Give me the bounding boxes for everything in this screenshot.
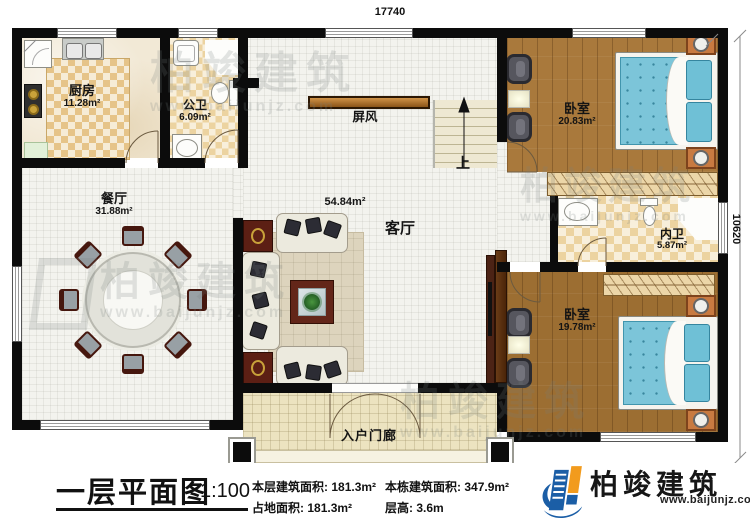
bed-pillow	[686, 102, 712, 142]
company-website: www.baijunjz.com	[660, 494, 750, 506]
entry-door-opening	[332, 383, 418, 393]
plan-scale: 1:100	[200, 480, 250, 503]
bed-pillow	[684, 324, 710, 362]
wall	[497, 38, 507, 142]
bedroom-chair	[506, 308, 532, 338]
title-block: 一层平面图 1:100 本层建筑面积: 181.3m² 本栋建筑面积: 347.…	[0, 463, 750, 523]
window	[572, 28, 646, 38]
wall	[160, 38, 170, 158]
stat-floor-area: 本层建筑面积: 181.3m²	[252, 478, 376, 495]
wall	[233, 383, 332, 393]
wall	[238, 38, 248, 158]
dining-chair	[187, 289, 207, 311]
bedroom-chair	[506, 358, 532, 388]
kitchen-sink	[62, 38, 104, 60]
window	[600, 432, 696, 442]
bedroom-top-label: 卧室20.83m²	[558, 102, 595, 127]
sofa	[276, 346, 348, 386]
bed-pillow	[684, 364, 710, 402]
stairs-up-label: 上	[456, 156, 470, 171]
bed-blanket	[664, 321, 686, 405]
dining-chair	[122, 354, 144, 374]
coffee-table	[290, 280, 334, 324]
window	[325, 28, 413, 38]
public-bath-label: 公卫6.09m²	[179, 99, 211, 123]
bedroom-chair	[506, 112, 532, 142]
toilet	[211, 82, 229, 104]
wall	[233, 393, 243, 430]
window	[40, 420, 210, 430]
bedroom-side-table	[508, 336, 530, 354]
wall	[12, 28, 22, 430]
tv	[488, 282, 492, 336]
dimension-tick	[734, 30, 746, 42]
living-label: 客厅	[385, 221, 415, 238]
stat-floor-height: 层高: 3.6m	[385, 499, 444, 516]
sofa	[242, 252, 280, 350]
plan-title: 一层平面图	[56, 469, 211, 511]
wall	[233, 78, 259, 88]
wardrobe	[547, 172, 718, 196]
wall	[540, 262, 578, 272]
wall	[12, 158, 125, 168]
bedroom-side-table	[508, 90, 530, 108]
wall	[158, 158, 205, 168]
nightstand	[686, 147, 716, 169]
nightstand	[686, 295, 716, 317]
stat-land-area: 占地面积: 181.3m²	[252, 499, 352, 516]
wall	[238, 158, 248, 168]
bed-blanket	[666, 57, 688, 145]
kitchen-label: 厨房11.28m²	[64, 84, 101, 109]
wardrobe	[603, 274, 715, 296]
side-table	[243, 220, 273, 252]
dining-chair	[59, 289, 79, 311]
inner-bath-sink	[564, 202, 590, 221]
window	[57, 28, 117, 38]
wall	[497, 383, 507, 432]
wall	[418, 383, 507, 393]
kitchen-corner-unit	[24, 40, 52, 68]
dining-label: 餐厅31.88m²	[95, 192, 132, 217]
nightstand	[686, 409, 716, 431]
sofa	[276, 213, 348, 253]
inner-toilet-tank	[640, 198, 658, 206]
wall	[497, 262, 510, 272]
porch-label: 入户门廊	[341, 429, 397, 443]
bedroom-bottom-label: 卧室19.78m²	[558, 308, 595, 333]
dimension-top: 17740	[352, 6, 428, 18]
window	[12, 266, 22, 342]
inner-toilet	[643, 206, 656, 226]
bedroom-chair	[506, 54, 532, 84]
dimension-right: 10620	[728, 194, 742, 264]
side-table	[243, 352, 273, 384]
wall	[550, 196, 558, 262]
company-logo-icon	[538, 463, 586, 521]
screen-label: 屏风	[352, 111, 377, 125]
dining-living-passage-floor	[233, 168, 243, 218]
plant	[304, 294, 320, 310]
dining-table	[85, 252, 181, 348]
screen-partition	[308, 96, 430, 109]
bath-sink	[176, 139, 198, 157]
stat-building-area: 本栋建筑面积: 347.9m²	[385, 478, 509, 495]
washing-machine	[173, 40, 199, 66]
window	[178, 28, 218, 38]
window	[718, 202, 728, 254]
porch-step	[235, 450, 511, 463]
wall	[233, 218, 243, 393]
title-underline	[56, 508, 248, 511]
living-area-label: 54.84m²	[325, 196, 366, 208]
bed-pillow	[686, 60, 712, 100]
inner-bath-label: 内卫5.87m²	[657, 228, 687, 252]
floor-plan-canvas: 厨房11.28m² 公卫6.09m² 餐厅31.88m² 54.84m² 客厅 …	[0, 0, 750, 523]
dining-chair	[122, 226, 144, 246]
wall	[606, 262, 718, 272]
stove	[24, 84, 42, 118]
